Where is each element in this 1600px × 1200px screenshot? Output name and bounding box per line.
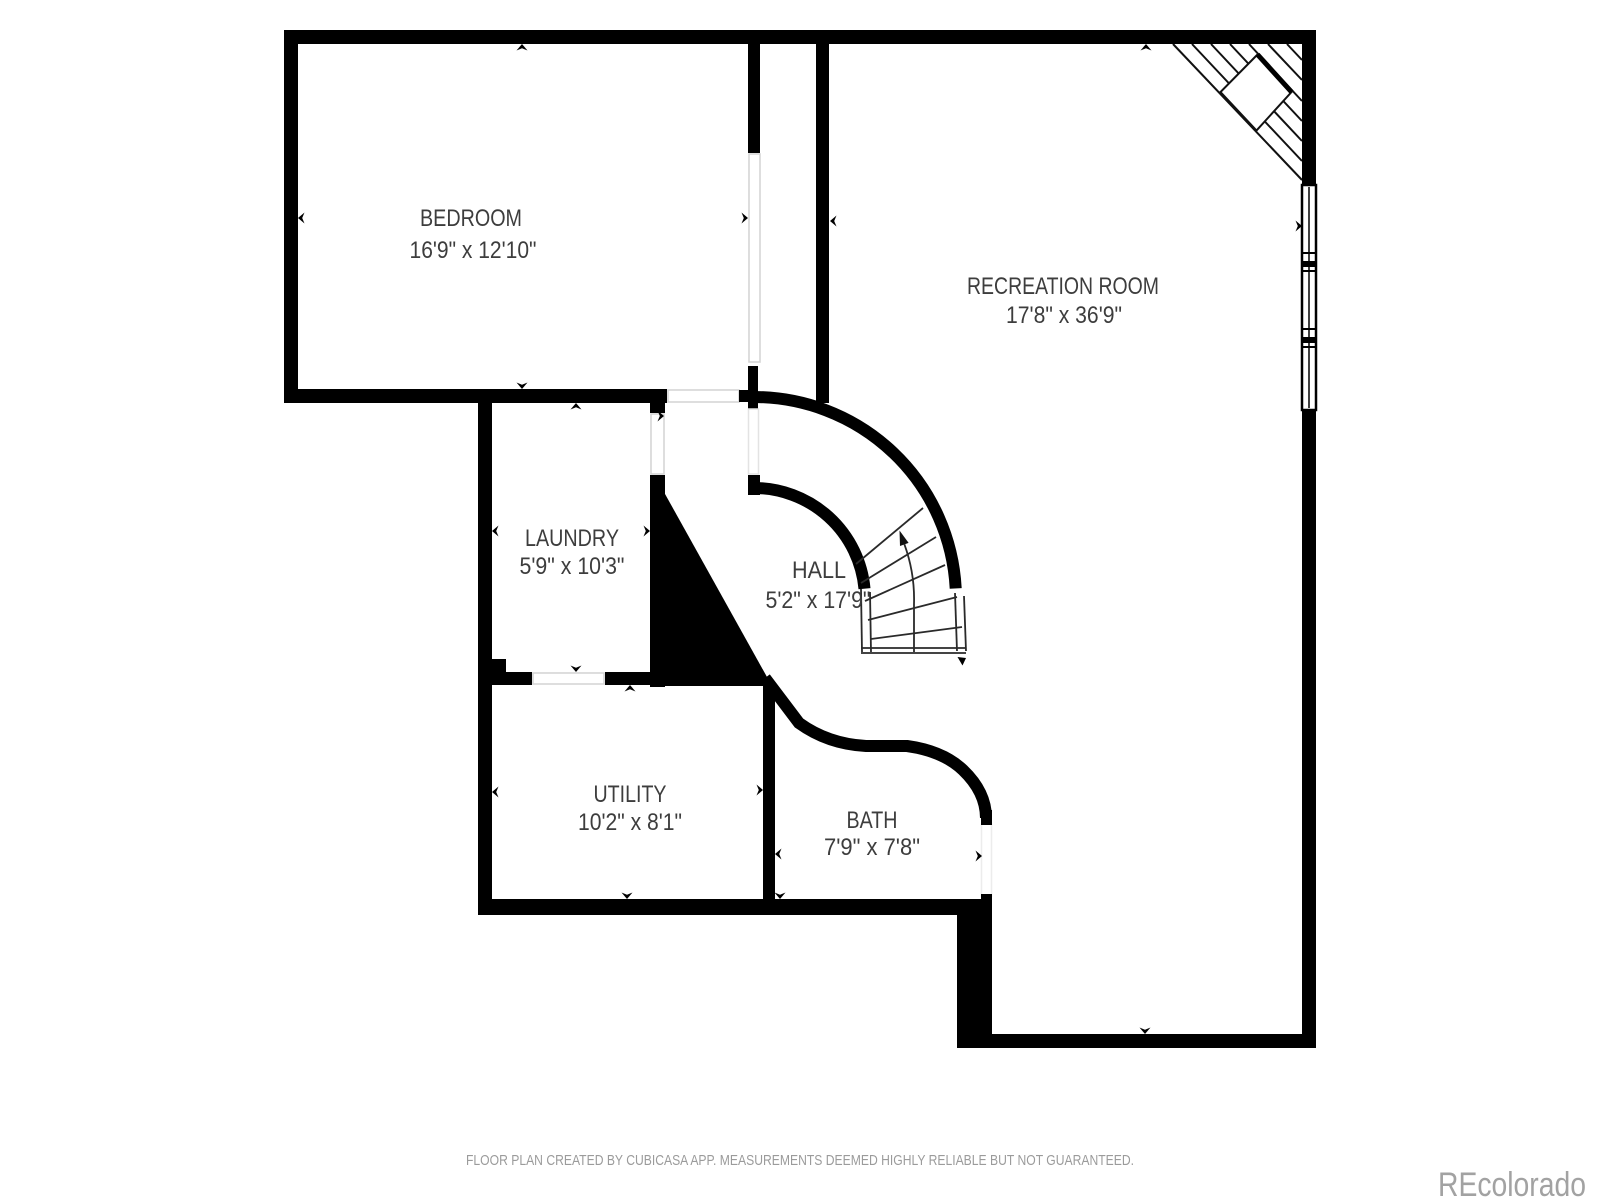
svg-text:5'2" x 17'9": 5'2" x 17'9" — [766, 587, 871, 614]
svg-text:16'9" x 12'10": 16'9" x 12'10" — [410, 237, 537, 264]
svg-text:10'2" x 8'1": 10'2" x 8'1" — [578, 809, 682, 836]
svg-text:BATH: BATH — [847, 807, 898, 834]
svg-text:LAUNDRY: LAUNDRY — [525, 525, 619, 552]
svg-text:BEDROOM: BEDROOM — [420, 205, 522, 232]
svg-text:REcolorado: REcolorado — [1438, 1166, 1586, 1200]
svg-text:FLOOR PLAN CREATED BY CUBICASA: FLOOR PLAN CREATED BY CUBICASA APP. MEAS… — [466, 1152, 1134, 1169]
svg-text:7'9" x 7'8": 7'9" x 7'8" — [824, 834, 920, 861]
svg-text:HALL: HALL — [792, 557, 846, 584]
svg-text:UTILITY: UTILITY — [594, 781, 667, 808]
svg-text:17'8" x 36'9": 17'8" x 36'9" — [1006, 302, 1122, 329]
svg-text:5'9" x 10'3": 5'9" x 10'3" — [520, 553, 625, 580]
svg-text:RECREATION ROOM: RECREATION ROOM — [967, 273, 1159, 300]
